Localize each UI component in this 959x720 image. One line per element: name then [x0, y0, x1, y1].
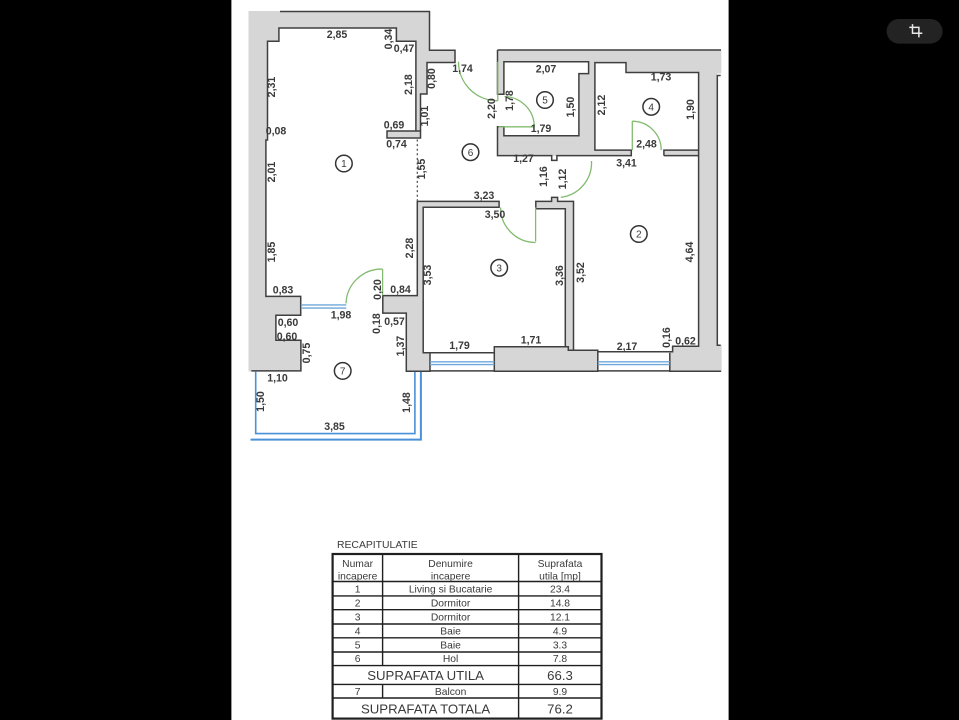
svg-text:2,07: 2,07 [536, 64, 557, 76]
svg-text:1,74: 1,74 [452, 63, 473, 75]
svg-text:3,36: 3,36 [554, 265, 566, 286]
svg-text:Denumire: Denumire [428, 559, 473, 570]
svg-text:Dormitor: Dormitor [431, 598, 471, 609]
svg-text:14.8: 14.8 [550, 598, 570, 609]
svg-text:0,84: 0,84 [390, 284, 411, 296]
svg-text:0,20: 0,20 [372, 279, 384, 300]
svg-text:2: 2 [636, 230, 642, 241]
svg-text:3: 3 [355, 612, 361, 623]
svg-text:0,80: 0,80 [426, 68, 438, 89]
svg-text:2,12: 2,12 [596, 95, 608, 116]
svg-text:2,48: 2,48 [636, 139, 657, 151]
svg-text:1,78: 1,78 [504, 90, 516, 111]
svg-text:4: 4 [355, 626, 361, 637]
svg-text:Numar: Numar [342, 559, 373, 570]
svg-text:1,37: 1,37 [395, 336, 407, 357]
svg-text:1,79: 1,79 [531, 123, 552, 135]
svg-text:4: 4 [648, 102, 654, 113]
svg-text:5: 5 [355, 641, 361, 652]
svg-text:7: 7 [340, 367, 346, 378]
svg-text:0,34: 0,34 [383, 29, 395, 50]
svg-text:0,16: 0,16 [661, 327, 673, 348]
svg-text:1,71: 1,71 [521, 335, 542, 347]
svg-text:Living si Bucatarie: Living si Bucatarie [409, 584, 493, 595]
svg-text:2,85: 2,85 [327, 29, 348, 41]
svg-text:4.9: 4.9 [553, 626, 568, 637]
svg-text:incapere: incapere [338, 572, 378, 583]
svg-text:1,01: 1,01 [419, 106, 431, 127]
svg-text:Baie: Baie [440, 626, 461, 637]
svg-text:0,74: 0,74 [386, 139, 407, 151]
svg-text:0,83: 0,83 [273, 285, 294, 297]
svg-text:SUPRAFATA TOTALA: SUPRAFATA TOTALA [361, 701, 490, 716]
svg-text:utila [mp]: utila [mp] [539, 572, 581, 583]
svg-text:66.3: 66.3 [547, 668, 573, 683]
svg-text:0,60: 0,60 [278, 317, 299, 329]
svg-text:1,79: 1,79 [449, 340, 470, 352]
svg-text:1,12: 1,12 [557, 169, 569, 190]
svg-text:2,28: 2,28 [404, 238, 416, 259]
svg-text:2,17: 2,17 [617, 341, 638, 353]
svg-text:0,62: 0,62 [675, 336, 696, 348]
svg-text:Hol: Hol [443, 654, 458, 665]
svg-text:Baie: Baie [440, 641, 461, 652]
svg-text:0,69: 0,69 [384, 120, 405, 132]
svg-text:1,90: 1,90 [685, 99, 697, 120]
svg-text:1,48: 1,48 [401, 392, 413, 413]
svg-text:1,73: 1,73 [651, 72, 672, 84]
svg-text:1,16: 1,16 [538, 166, 550, 187]
svg-text:1,50: 1,50 [565, 97, 577, 118]
svg-text:1,98: 1,98 [331, 310, 352, 322]
svg-text:1,85: 1,85 [266, 242, 278, 263]
svg-text:Balcon: Balcon [435, 687, 467, 698]
svg-text:12.1: 12.1 [550, 612, 570, 623]
svg-text:3,41: 3,41 [616, 158, 637, 170]
svg-text:0,47: 0,47 [394, 43, 415, 55]
svg-text:2,01: 2,01 [266, 162, 278, 183]
svg-text:3,52: 3,52 [575, 262, 587, 283]
svg-text:3,53: 3,53 [422, 265, 434, 286]
svg-text:3,85: 3,85 [324, 421, 345, 433]
svg-text:9.9: 9.9 [553, 687, 568, 698]
svg-text:1,10: 1,10 [267, 373, 288, 385]
svg-text:RECAPITULATIE: RECAPITULATIE [337, 540, 418, 551]
svg-text:5: 5 [542, 96, 548, 107]
svg-text:0,75: 0,75 [301, 343, 313, 364]
svg-text:0,18: 0,18 [371, 313, 383, 334]
svg-text:3,23: 3,23 [474, 190, 495, 202]
svg-text:3,50: 3,50 [485, 209, 506, 221]
svg-text:2,31: 2,31 [266, 77, 278, 98]
svg-text:2,20: 2,20 [486, 98, 498, 119]
svg-text:4,64: 4,64 [684, 242, 696, 263]
svg-text:7: 7 [355, 687, 361, 698]
svg-text:SUPRAFATA UTILA: SUPRAFATA UTILA [367, 668, 484, 683]
svg-text:1: 1 [341, 159, 347, 170]
svg-text:7.8: 7.8 [553, 654, 568, 665]
svg-text:0,57: 0,57 [384, 316, 405, 328]
svg-text:6: 6 [355, 654, 361, 665]
svg-text:1,27: 1,27 [513, 153, 534, 165]
svg-text:2: 2 [355, 598, 361, 609]
svg-text:incapere: incapere [431, 572, 471, 583]
svg-text:1,50: 1,50 [255, 391, 267, 412]
svg-text:2,18: 2,18 [403, 74, 415, 95]
svg-text:0,08: 0,08 [266, 126, 287, 138]
svg-text:3.3: 3.3 [553, 641, 568, 652]
svg-text:1,55: 1,55 [416, 159, 428, 180]
svg-text:0,60: 0,60 [277, 331, 298, 343]
svg-text:1: 1 [355, 584, 361, 595]
svg-text:Suprafata: Suprafata [538, 559, 583, 570]
svg-text:23.4: 23.4 [550, 584, 570, 595]
svg-text:6: 6 [468, 148, 474, 159]
svg-text:3: 3 [496, 263, 502, 274]
svg-text:76.2: 76.2 [547, 701, 573, 716]
svg-text:Dormitor: Dormitor [431, 612, 471, 623]
